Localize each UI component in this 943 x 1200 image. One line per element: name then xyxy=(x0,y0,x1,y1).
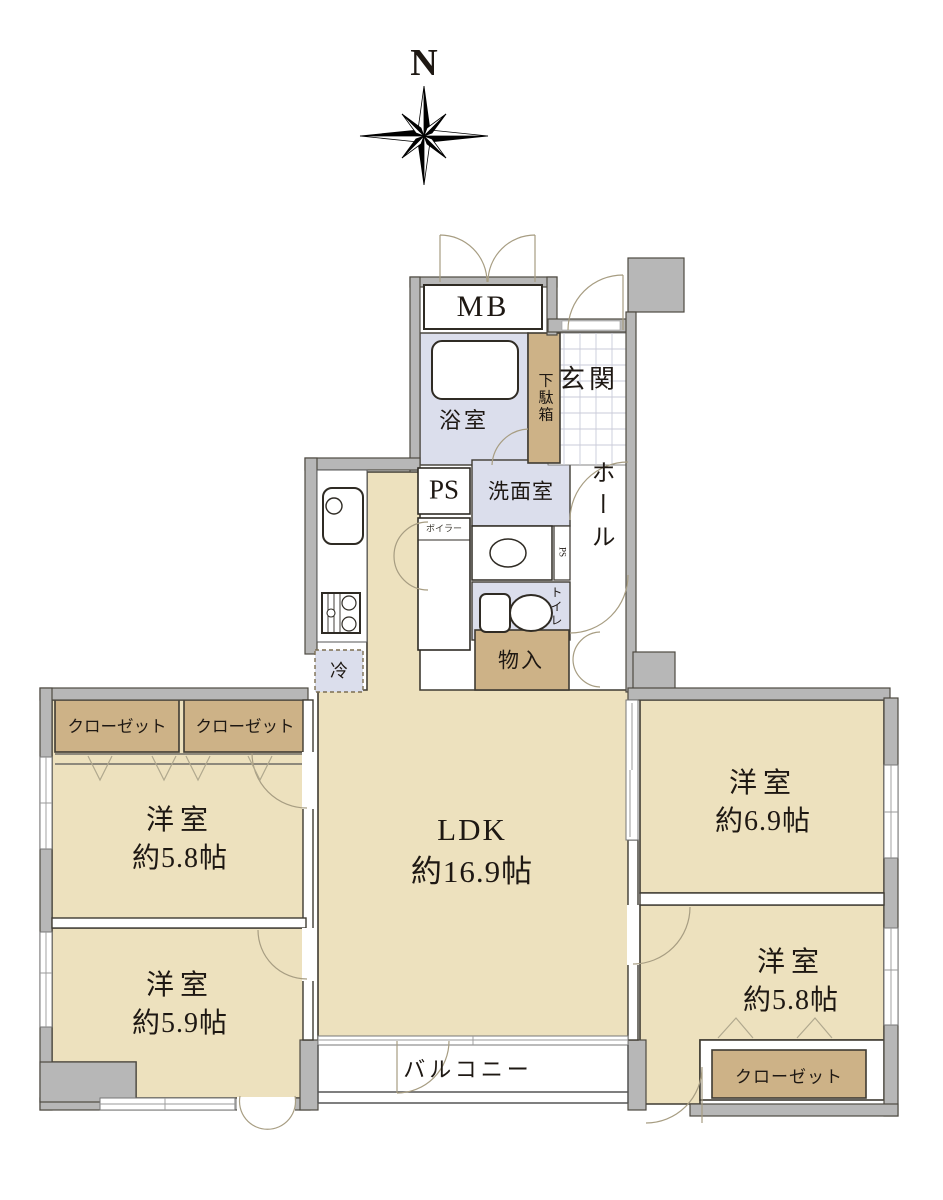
stove-icon xyxy=(322,593,360,633)
balcony-label: バルコニー xyxy=(403,1059,533,1081)
compass-n-label: N xyxy=(410,44,437,82)
fridge-label: 冷 xyxy=(330,662,348,680)
genkan-label: 玄関 xyxy=(559,367,619,393)
room-se-label: 洋室 約5.8帖 xyxy=(743,944,839,1020)
toilet-label: トイレ xyxy=(550,586,562,628)
room-se-name: 洋室 xyxy=(743,944,839,982)
room-ne-label: 洋室 約6.9帖 xyxy=(715,765,811,841)
entrance-door-gap xyxy=(562,321,620,330)
hall-label: ホール xyxy=(588,460,612,556)
bathtub-icon xyxy=(432,341,518,399)
room-se-area: 約5.8帖 xyxy=(743,982,839,1020)
floor-plan: N MB 玄関 下駄箱 浴室 PS ボイラー 洗面室 PS トイレ ホール 物入… xyxy=(0,0,943,1200)
room-nw-name: 洋室 xyxy=(132,802,228,840)
ps-label: PS xyxy=(429,477,459,504)
kitchen-sink-icon xyxy=(323,488,363,544)
washbasin-icon xyxy=(472,526,552,580)
door-arc xyxy=(440,235,487,282)
boiler-box xyxy=(418,518,470,650)
sliding-door xyxy=(626,700,638,840)
mb-label: MB xyxy=(457,292,510,322)
storage-label: 物入 xyxy=(498,651,544,672)
room-sw-area: 約5.9帖 xyxy=(132,1005,228,1043)
closet-nw-left-label: クローゼット xyxy=(68,719,167,736)
boiler-label: ボイラー xyxy=(426,525,462,534)
door-arc xyxy=(488,235,535,282)
bathroom-label: 浴室 xyxy=(439,410,489,432)
washroom-label: 洗面室 xyxy=(488,482,554,503)
room-sw-label: 洋室 約5.9帖 xyxy=(132,967,228,1043)
shoe-cabinet-label: 下駄箱 xyxy=(537,373,552,424)
room-ldk-area: 約16.9帖 xyxy=(411,851,533,893)
ps-small-label: PS xyxy=(558,547,567,557)
closet-nw-right-label: クローゼット xyxy=(196,719,295,736)
room-nw-label: 洋室 約5.8帖 xyxy=(132,802,228,878)
closet-se-label: クローゼット xyxy=(735,1069,843,1086)
compass-icon xyxy=(360,86,488,185)
room-ne-name: 洋室 xyxy=(715,765,811,803)
room-sw-name: 洋室 xyxy=(132,967,228,1005)
door-arc xyxy=(573,632,600,687)
toilet-icon xyxy=(480,594,552,632)
room-ldk-name: LDK xyxy=(411,809,533,851)
room-ne-area: 約6.9帖 xyxy=(715,803,811,841)
room-ldk-label: LDK 約16.9帖 xyxy=(411,809,533,893)
room-nw-area: 約5.8帖 xyxy=(132,840,228,878)
door-arc xyxy=(570,575,628,633)
